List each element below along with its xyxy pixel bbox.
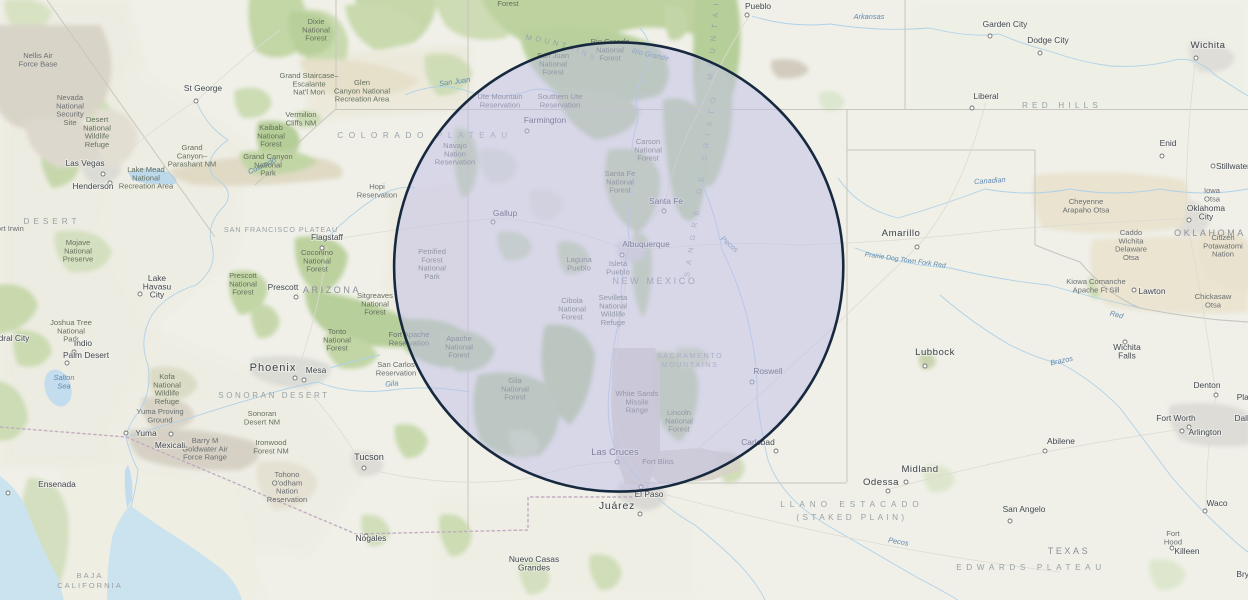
svg-text:Killeen: Killeen <box>1174 546 1199 556</box>
svg-text:TEXAS: TEXAS <box>1048 546 1091 556</box>
svg-text:Plain: Plain <box>1237 392 1248 402</box>
svg-text:EDWARDS PLATEAU: EDWARDS PLATEAU <box>956 563 1106 572</box>
svg-text:Prescott: Prescott <box>268 282 299 292</box>
svg-text:Waco: Waco <box>1206 498 1227 508</box>
svg-text:IronwoodForest NM: IronwoodForest NM <box>253 438 288 455</box>
svg-text:Juárez: Juárez <box>599 500 635 512</box>
svg-text:SonoranDesert NM: SonoranDesert NM <box>244 409 280 426</box>
svg-text:Fort Irwin: Fort Irwin <box>0 224 24 233</box>
svg-text:Tucson: Tucson <box>354 452 384 462</box>
svg-text:Fort Worth: Fort Worth <box>1156 413 1196 423</box>
svg-text:IowaOtsa: IowaOtsa <box>1204 186 1221 203</box>
svg-text:RED HILLS: RED HILLS <box>1022 101 1102 110</box>
svg-text:Wichita: Wichita <box>1191 40 1226 51</box>
svg-text:Forest: Forest <box>497 0 519 8</box>
svg-text:San Angelo: San Angelo <box>1003 504 1046 514</box>
svg-text:San CarlosReservation: San CarlosReservation <box>376 360 417 377</box>
svg-text:Arkansas: Arkansas <box>853 12 885 21</box>
svg-text:Amarillo: Amarillo <box>882 228 921 239</box>
svg-text:Phoenix: Phoenix <box>250 362 297 374</box>
svg-text:Denton: Denton <box>1193 380 1220 390</box>
svg-text:DesertNationalWildlifeRefuge: DesertNationalWildlifeRefuge <box>83 115 111 149</box>
svg-text:Palm Desert: Palm Desert <box>63 350 110 360</box>
svg-text:Indio: Indio <box>74 338 93 348</box>
svg-text:St George: St George <box>184 83 223 93</box>
svg-text:Dalla: Dalla <box>1234 413 1248 423</box>
svg-text:Yuma: Yuma <box>135 428 157 438</box>
svg-text:DESERT: DESERT <box>23 217 80 226</box>
svg-text:Henderson: Henderson <box>73 181 114 191</box>
svg-text:Odessa: Odessa <box>863 477 899 488</box>
svg-text:PrescottNationalForest: PrescottNationalForest <box>229 271 258 297</box>
svg-text:VermilionCliffs NM: VermilionCliffs NM <box>285 110 316 127</box>
svg-text:Garden City: Garden City <box>983 19 1028 29</box>
svg-text:ARIZONA: ARIZONA <box>303 285 361 295</box>
svg-text:OKLAHOMA: OKLAHOMA <box>1174 228 1246 238</box>
svg-text:Stillwater: Stillwater <box>1216 161 1248 171</box>
svg-text:Dodge City: Dodge City <box>1027 35 1069 45</box>
svg-text:KaibabNationalForest: KaibabNationalForest <box>257 123 285 149</box>
svg-text:SAN FRANCISCO PLATEAU: SAN FRANCISCO PLATEAU <box>224 225 338 234</box>
svg-text:dral City: dral City <box>0 333 30 343</box>
svg-text:Brya: Brya <box>1236 569 1248 579</box>
svg-text:FortHood: FortHood <box>1164 529 1182 546</box>
svg-text:Liberal: Liberal <box>973 91 998 101</box>
svg-text:Las Vegas: Las Vegas <box>65 158 104 168</box>
svg-text:Mexicali: Mexicali <box>155 440 185 450</box>
svg-text:Ensenada: Ensenada <box>38 479 76 489</box>
svg-text:Mesa: Mesa <box>306 365 327 375</box>
svg-text:Arlington: Arlington <box>1188 427 1221 437</box>
svg-text:Abilene: Abilene <box>1047 436 1075 446</box>
svg-text:Enid: Enid <box>1160 138 1177 148</box>
svg-text:SONORAN DESERT: SONORAN DESERT <box>218 391 329 400</box>
svg-text:LLANO ESTACADO: LLANO ESTACADO <box>780 500 924 509</box>
svg-text:MojaveNationalPreserve: MojaveNationalPreserve <box>63 238 93 264</box>
svg-text:Kiowa ComancheApache Ft Sill: Kiowa ComancheApache Ft Sill <box>1066 277 1126 294</box>
svg-text:Lubbock: Lubbock <box>915 347 955 358</box>
svg-text:Nellis AirForce Base: Nellis AirForce Base <box>19 51 58 68</box>
svg-text:Lawton: Lawton <box>1138 286 1165 296</box>
svg-text:Midland: Midland <box>901 464 938 475</box>
svg-text:Gila: Gila <box>385 378 399 388</box>
svg-text:Pueblo: Pueblo <box>745 1 771 11</box>
svg-text:(STAKED PLAIN): (STAKED PLAIN) <box>796 513 907 522</box>
svg-text:CheyenneArapaho Otsa: CheyenneArapaho Otsa <box>1063 197 1111 214</box>
svg-text:Nogales: Nogales <box>356 533 387 543</box>
